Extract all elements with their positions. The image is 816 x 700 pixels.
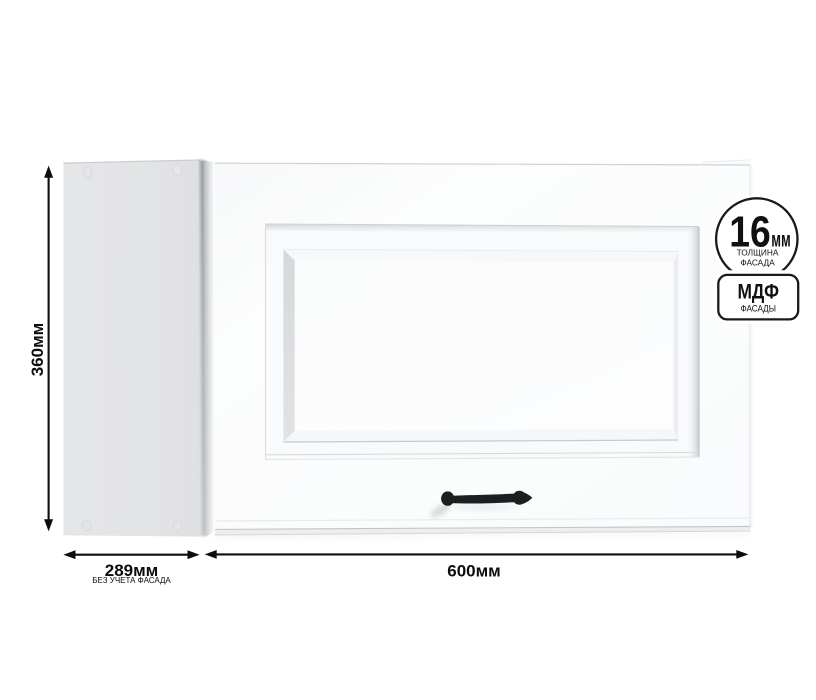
svg-text:ФАСАДЫ: ФАСАДЫ (740, 303, 776, 313)
svg-text:ТОЛЩИНА: ТОЛЩИНА (737, 248, 779, 258)
svg-text:МДФ: МДФ (737, 281, 779, 304)
svg-text:600мм: 600мм (447, 561, 501, 580)
svg-text:ФАСАДА: ФАСАДА (740, 258, 775, 268)
svg-text:360мм: 360мм (28, 323, 47, 377)
svg-text:БЕЗ УЧЕТА ФАСАДА: БЕЗ УЧЕТА ФАСАДА (92, 576, 171, 585)
